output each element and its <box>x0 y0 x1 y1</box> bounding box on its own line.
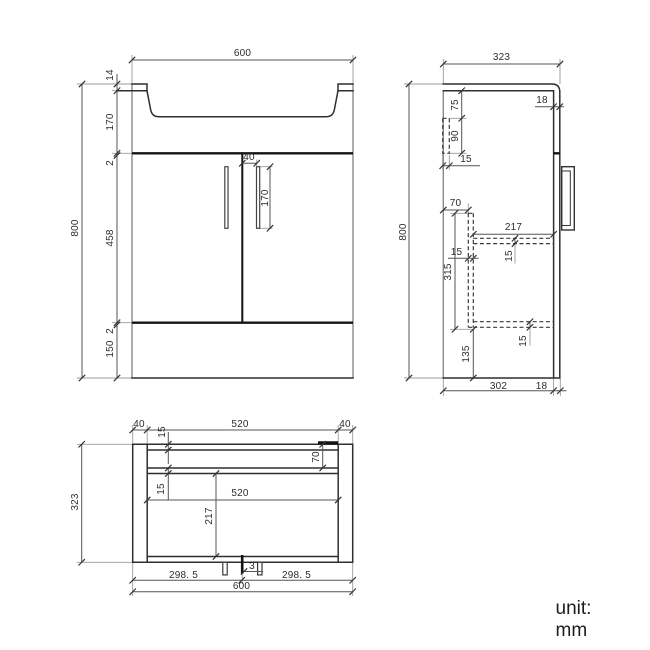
side-view <box>404 59 574 396</box>
dim-front-overall-width: 600 <box>234 49 251 59</box>
dim-front-handle-offset: 40 <box>243 153 255 163</box>
dim-plan-side-panel-right: 40 <box>339 420 351 430</box>
dim-front-gap-top: 2 <box>106 160 116 166</box>
dim-plan-overall-width: 600 <box>233 582 250 592</box>
dim-side-shelf-setback: 70 <box>450 199 462 209</box>
dim-plan-top-opening-width: 520 <box>231 420 248 430</box>
dim-front-door-height: 458 <box>106 229 116 246</box>
dim-side-bracket-height: 90 <box>451 130 461 142</box>
dim-side-overall-depth: 323 <box>493 53 510 63</box>
dim-front-gap-bottom: 2 <box>106 328 116 334</box>
dim-side-bracket-thickness: 15 <box>460 155 472 165</box>
side-cabinet-outline <box>443 84 560 378</box>
dim-plan-back-panel-thickness: 15 <box>158 426 168 438</box>
dim-side-shelf-thickness: 15 <box>505 250 515 262</box>
dim-plan-opening-width: 520 <box>231 489 248 499</box>
side-handle-outer <box>562 167 575 230</box>
dim-front-plinth-height: 150 <box>106 340 116 357</box>
dim-plan-side-panel-left: 40 <box>133 420 145 430</box>
dim-side-body-depth: 302 <box>490 382 507 392</box>
unit-label: unit: mm <box>556 598 619 642</box>
dim-side-bracket-offset: 75 <box>451 99 461 111</box>
dim-plan-rail-thickness: 15 <box>157 483 167 495</box>
technical-drawing: 600 14 170 2 458 2 150 800 40 170 323 18… <box>0 0 650 650</box>
dim-plan-door-gap: 3 <box>249 562 255 572</box>
front-view <box>77 55 353 378</box>
dim-side-divider-thickness: 15 <box>451 248 463 258</box>
dim-front-handle-length: 170 <box>261 189 271 206</box>
front-left-door-handle <box>225 167 228 229</box>
dim-plan-overall-depth: 323 <box>71 493 81 510</box>
dim-side-bottom-shelf-thickness: 15 <box>519 335 529 347</box>
dim-front-overall-height: 800 <box>71 219 81 236</box>
dim-front-basin-height: 170 <box>106 113 116 130</box>
dim-front-top-lip: 14 <box>106 69 116 81</box>
dim-plan-front-setback: 70 <box>312 451 322 463</box>
dim-side-door-thickness: 18 <box>536 382 548 392</box>
dim-plan-door-width-right: 298. 5 <box>282 571 311 581</box>
dimension-ticks <box>79 57 564 595</box>
front-basin-profile <box>147 91 338 117</box>
dim-plan-door-width-left: 298. 5 <box>169 571 198 581</box>
plan-right-hinge-tab <box>258 562 262 575</box>
dim-side-bottom-clearance: 135 <box>462 345 472 362</box>
dim-side-shelf-depth: 217 <box>505 223 522 233</box>
dim-side-panel-top-thickness: 18 <box>536 96 548 106</box>
dim-plan-opening-depth: 217 <box>205 507 215 524</box>
side-dimension-lines <box>409 64 567 391</box>
drawing-linework <box>0 0 650 650</box>
front-dimension-lines <box>82 60 353 378</box>
dim-side-overall-height: 800 <box>399 223 409 240</box>
front-cabinet-outline <box>117 84 353 378</box>
dim-side-divider-height: 315 <box>444 263 454 280</box>
plan-left-hinge-tab <box>223 562 227 575</box>
side-hidden-parts <box>443 118 554 327</box>
